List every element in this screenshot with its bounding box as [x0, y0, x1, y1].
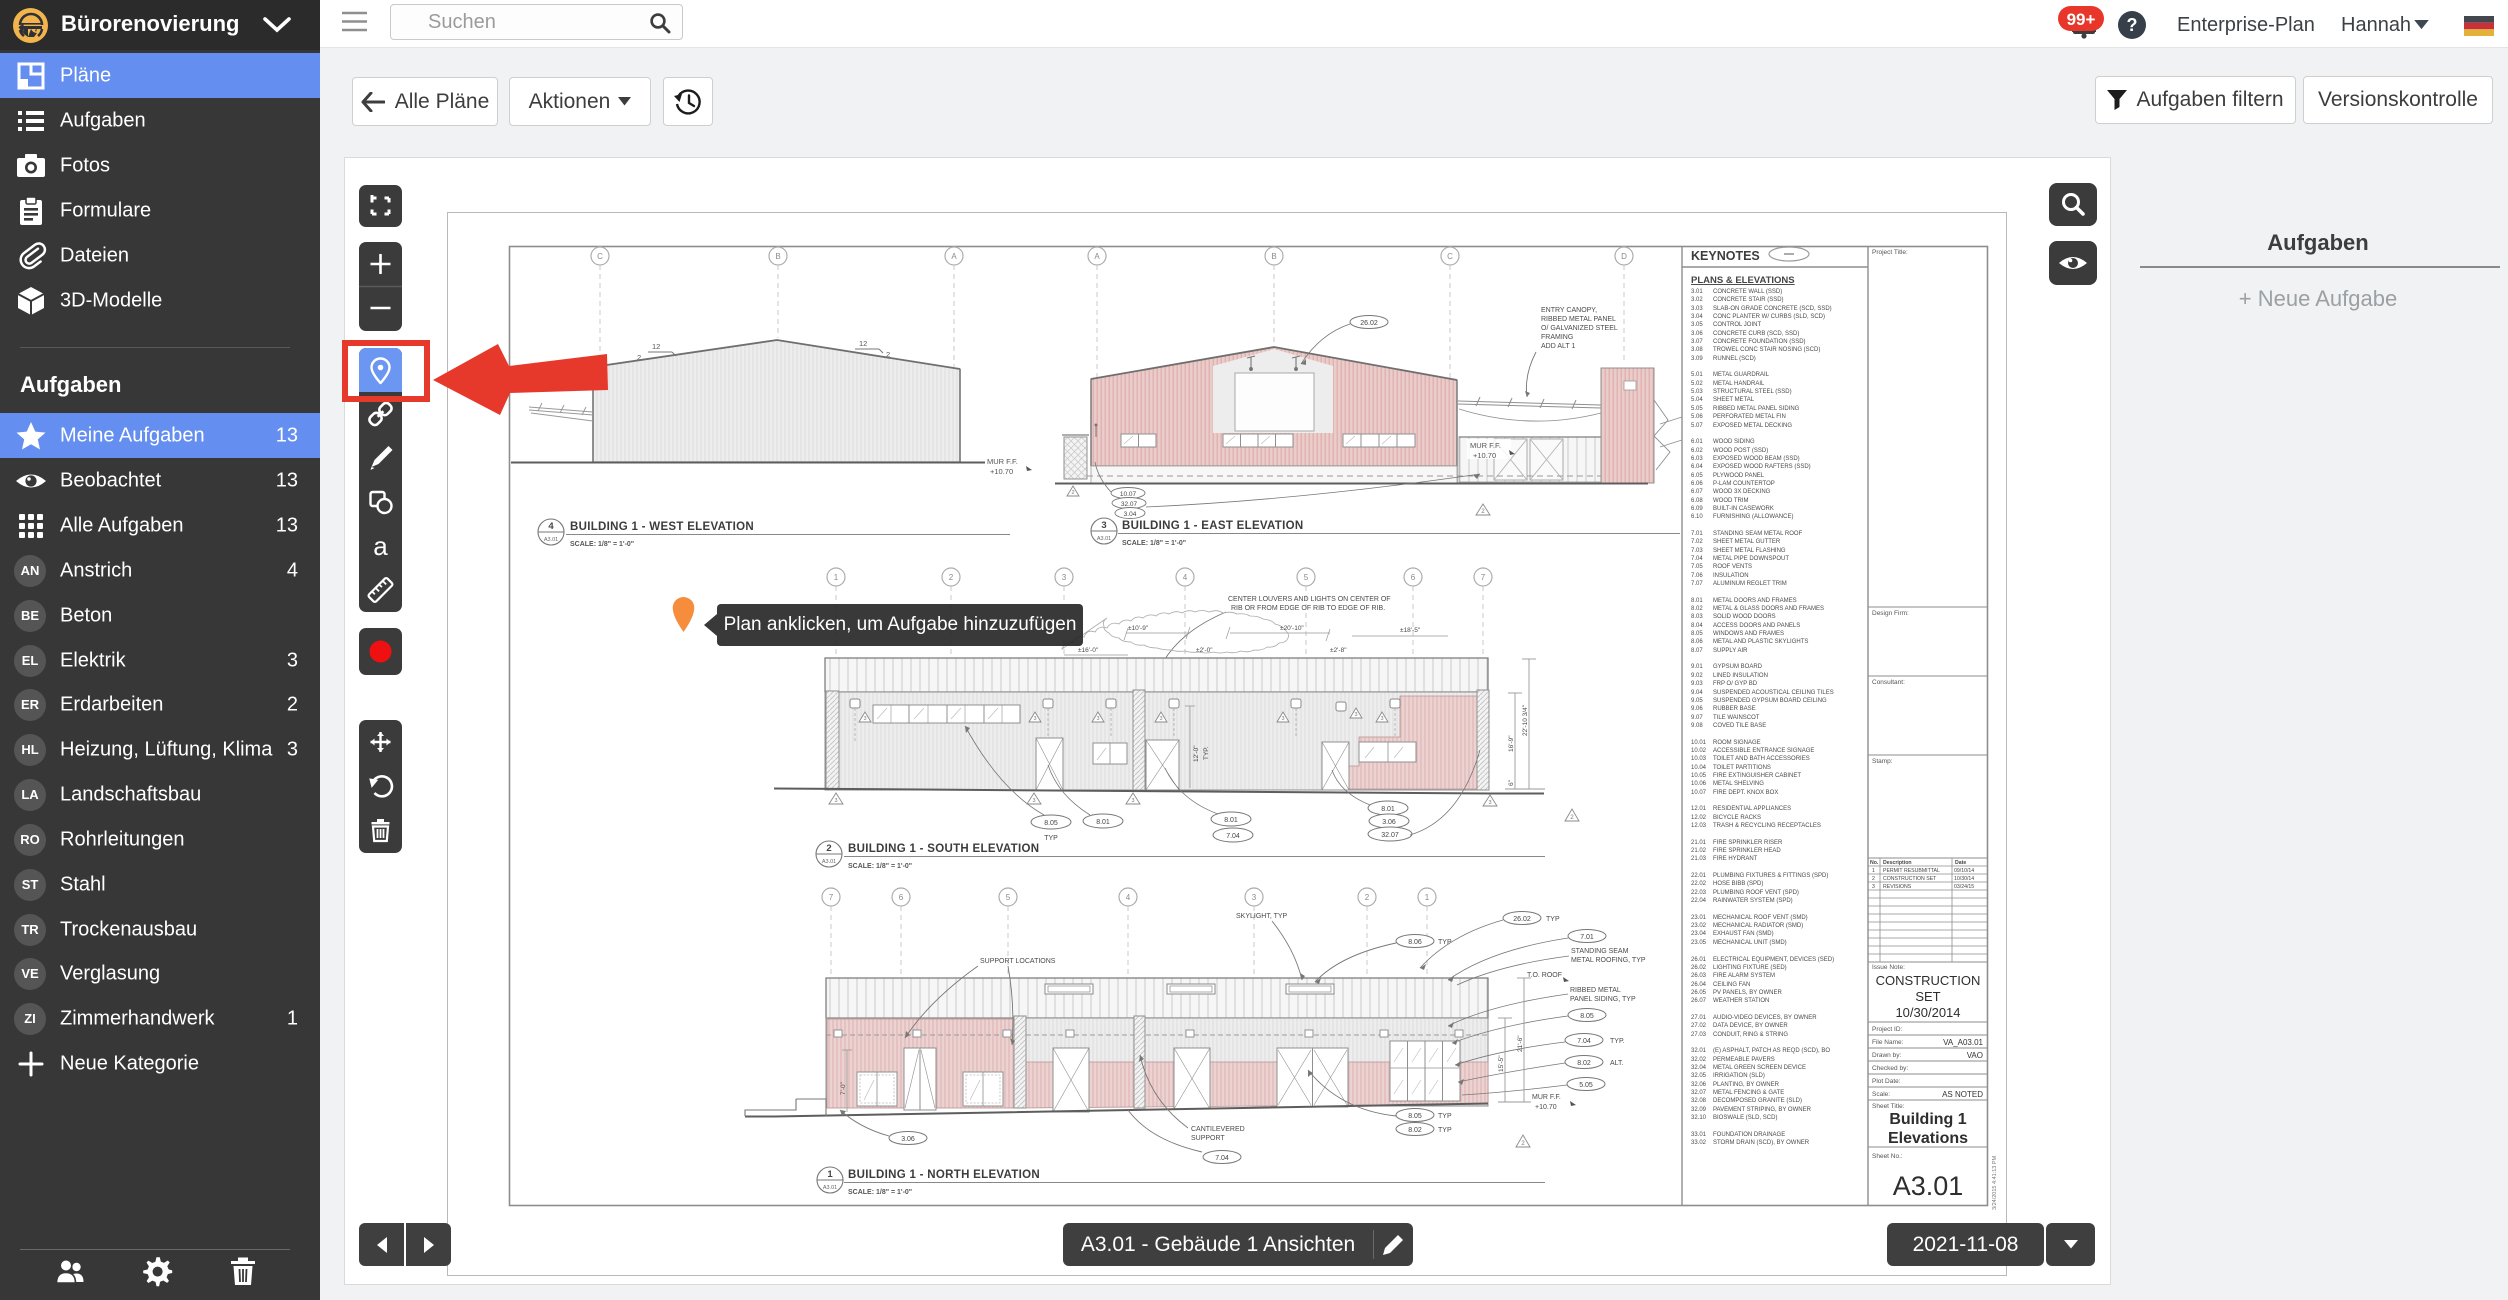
svg-text:8.05: 8.05 [1408, 1113, 1422, 1120]
svg-text:3: 3 [1281, 716, 1284, 722]
svg-text:3: 3 [1096, 716, 1099, 722]
svg-text:TYP.: TYP. [1610, 1038, 1625, 1045]
svg-text:2: 2 [826, 843, 831, 854]
svg-text:C: C [1447, 252, 1453, 261]
svg-text:BUILDING 1 - SOUTH ELEVATION: BUILDING 1 - SOUTH ELEVATION [848, 843, 1039, 855]
svg-text:7'-0": 7'-0" [840, 1081, 847, 1095]
svg-text:A3.01: A3.01 [1097, 536, 1111, 542]
svg-text:16'-9": 16'-9" [1508, 735, 1515, 752]
svg-text:PANEL SIDING, TYP: PANEL SIDING, TYP [1570, 996, 1636, 1003]
svg-text:TYP: TYP [1438, 939, 1452, 946]
svg-text:3: 3 [834, 798, 837, 804]
svg-text:SET: SET [1915, 989, 1940, 1004]
svg-text:+10.70: +10.70 [990, 467, 1013, 476]
svg-text:Drawn by:: Drawn by: [1872, 1052, 1901, 1059]
svg-text:8.05: 8.05 [1580, 1013, 1594, 1020]
svg-text:Date: Date [1955, 860, 1966, 866]
svg-text:1: 1 [834, 573, 839, 582]
svg-text:CONSTRUCTION SET: CONSTRUCTION SET [1883, 876, 1937, 882]
svg-text:T.O. ROOF: T.O. ROOF [1527, 972, 1562, 979]
svg-text:7.01: 7.01 [1580, 934, 1594, 941]
svg-text:5: 5 [1304, 573, 1309, 582]
svg-text:±16'-0": ±16'-0" [1078, 647, 1099, 654]
svg-text:7: 7 [1481, 573, 1486, 582]
svg-text:8.06: 8.06 [1408, 939, 1422, 946]
svg-text:±2'-0": ±2'-0" [1196, 647, 1213, 654]
svg-text:12: 12 [859, 339, 867, 348]
svg-text:Sheet No.:: Sheet No.: [1872, 1153, 1903, 1160]
svg-text:FRAMING: FRAMING [1541, 334, 1573, 341]
svg-text:STANDING SEAM: STANDING SEAM [1571, 948, 1629, 955]
svg-text:BUILDING 1 - WEST ELEVATION: BUILDING 1 - WEST ELEVATION [570, 521, 754, 533]
svg-text:BUILDING 1 - NORTH ELEVATION: BUILDING 1 - NORTH ELEVATION [848, 1169, 1040, 1181]
svg-text:MUR F.F.: MUR F.F. [1532, 1094, 1561, 1101]
svg-text:SCALE: 1/8" = 1'-0": SCALE: 1/8" = 1'-0" [570, 541, 634, 548]
svg-text:12'-0": 12'-0" [1193, 745, 1200, 762]
svg-text:A3.01: A3.01 [1893, 1171, 1964, 1201]
svg-text:3.04: 3.04 [1124, 511, 1137, 518]
svg-text:7: 7 [829, 893, 834, 902]
svg-text:TYP: TYP [1044, 835, 1058, 842]
svg-text:TYP: TYP [1438, 1127, 1452, 1134]
svg-text:VA_A03.01: VA_A03.01 [1943, 1038, 1983, 1047]
svg-text:3: 3 [1062, 573, 1067, 582]
svg-text:ALT.: ALT. [1610, 1060, 1624, 1067]
svg-text:Plot Date:: Plot Date: [1872, 1078, 1901, 1085]
svg-text:A: A [1094, 252, 1100, 261]
svg-text:Design Firm:: Design Firm: [1872, 610, 1909, 617]
svg-text:±10'-9": ±10'-9" [1128, 625, 1149, 632]
svg-text:26.02: 26.02 [1513, 916, 1531, 923]
svg-text:METAL ROOFING, TYP: METAL ROOFING, TYP [1571, 957, 1646, 964]
svg-text:A3.01: A3.01 [822, 859, 836, 865]
svg-text:5.05: 5.05 [1579, 1082, 1593, 1089]
svg-text:99+: 99+ [2067, 10, 2096, 29]
svg-text:D: D [1621, 252, 1627, 261]
svg-text:Consultant:: Consultant: [1872, 679, 1905, 686]
svg-text:CONSTRUCTION: CONSTRUCTION [1876, 973, 1981, 988]
svg-text:3: 3 [1872, 884, 1875, 890]
svg-text:A3.01: A3.01 [823, 1185, 837, 1191]
svg-text:RIBBED METAL: RIBBED METAL [1570, 987, 1621, 994]
svg-text:ENTRY CANOPY,: ENTRY CANOPY, [1541, 307, 1597, 314]
svg-text:8.05: 8.05 [1044, 820, 1058, 827]
svg-text:Issue Note:: Issue Note: [1872, 964, 1905, 971]
svg-text:8.01: 8.01 [1224, 817, 1238, 824]
svg-text:3.06: 3.06 [901, 1136, 915, 1143]
svg-text:C: C [597, 252, 603, 261]
svg-text:±2'-8": ±2'-8" [1330, 647, 1347, 654]
svg-text:3: 3 [1252, 893, 1257, 902]
svg-text:+10.70: +10.70 [1473, 451, 1496, 460]
svg-text:SCALE: 1/8" = 1'-0": SCALE: 1/8" = 1'-0" [848, 1189, 912, 1196]
svg-text:CANTILEVERED: CANTILEVERED [1191, 1126, 1245, 1133]
svg-text:Sheet Title:: Sheet Title: [1872, 1103, 1905, 1110]
svg-text:6: 6 [899, 893, 904, 902]
svg-text:6: 6 [1411, 573, 1416, 582]
svg-text:4: 4 [1126, 893, 1131, 902]
svg-text:3/24/2015 4:41:13 PM: 3/24/2015 4:41:13 PM [1992, 1155, 1998, 1210]
svg-text:3: 3 [1380, 716, 1383, 722]
svg-text:±18'-5": ±18'-5" [1400, 627, 1421, 634]
svg-text:7.04: 7.04 [1215, 1155, 1229, 1162]
svg-text:8.02: 8.02 [1408, 1127, 1422, 1134]
svg-text:Description: Description [1883, 860, 1912, 866]
svg-text:SCALE: 1/8" = 1'-0": SCALE: 1/8" = 1'-0" [1122, 540, 1186, 547]
svg-text:Stamp:: Stamp: [1872, 758, 1893, 765]
svg-text:10.07: 10.07 [1120, 491, 1137, 498]
svg-text:A3.01: A3.01 [544, 537, 558, 543]
svg-text:MUR F.F.: MUR F.F. [987, 457, 1018, 466]
svg-text:KEYNOTES: KEYNOTES [1691, 249, 1760, 263]
svg-text:3.06: 3.06 [1382, 819, 1396, 826]
svg-text:AS NOTED: AS NOTED [1942, 1090, 1983, 1099]
svg-text:2: 2 [1365, 893, 1370, 902]
svg-text:32.07: 32.07 [1381, 832, 1399, 839]
svg-text:A: A [951, 252, 957, 261]
svg-text:TYP: TYP [1438, 1113, 1452, 1120]
svg-text:TYP: TYP [1546, 916, 1560, 923]
svg-text:32.07: 32.07 [1121, 501, 1138, 508]
svg-text:5: 5 [1006, 893, 1011, 902]
svg-text:SCALE: 1/8" = 1'-0": SCALE: 1/8" = 1'-0" [848, 863, 912, 870]
svg-text:Scale:: Scale: [1872, 1091, 1890, 1098]
svg-text:03/24/15: 03/24/15 [1954, 884, 1974, 890]
svg-text:7.04: 7.04 [1577, 1038, 1591, 1045]
svg-text:8.02: 8.02 [1577, 1060, 1591, 1067]
svg-text:RIBBED METAL PANEL: RIBBED METAL PANEL [1541, 316, 1616, 323]
svg-text:6": 6" [1508, 779, 1515, 786]
svg-text:7.04: 7.04 [1226, 833, 1240, 840]
svg-text:09/10/14: 09/10/14 [1954, 868, 1974, 874]
svg-text:8.01: 8.01 [1381, 806, 1395, 813]
svg-text:+10.70: +10.70 [1535, 1104, 1557, 1111]
svg-text:File Name:: File Name: [1872, 1039, 1904, 1046]
svg-text:BUILDING 1 - EAST ELEVATION: BUILDING 1 - EAST ELEVATION [1122, 520, 1303, 532]
svg-text:Checked by:: Checked by: [1872, 1065, 1908, 1072]
svg-text:4: 4 [548, 521, 554, 532]
svg-text:PERMIT RESUBMITTAL: PERMIT RESUBMITTAL [1883, 868, 1940, 874]
svg-text:2: 2 [637, 353, 641, 362]
svg-text:10/30/2014: 10/30/2014 [1895, 1005, 1960, 1020]
svg-text:Building 1: Building 1 [1889, 1111, 1966, 1128]
svg-text:3: 3 [1131, 798, 1134, 804]
svg-text:22'-10 3/4": 22'-10 3/4" [1522, 704, 1529, 736]
svg-text:2: 2 [886, 350, 890, 359]
svg-text:2: 2 [949, 573, 954, 582]
svg-text:3: 3 [1101, 520, 1106, 531]
svg-text:PLANS & ELEVATIONS: PLANS & ELEVATIONS [1691, 275, 1795, 286]
svg-text:±20'-10": ±20'-10" [1280, 625, 1304, 632]
svg-text:26.02: 26.02 [1360, 320, 1378, 327]
svg-text:3: 3 [1488, 800, 1491, 806]
svg-text:2: 2 [1071, 490, 1074, 496]
svg-text:MUR F.F.: MUR F.F. [1470, 441, 1501, 450]
svg-text:SUPPORT LOCATIONS: SUPPORT LOCATIONS [980, 958, 1056, 965]
svg-text:VAO: VAO [1967, 1051, 1983, 1060]
svg-text:REVISIONS: REVISIONS [1883, 884, 1912, 890]
svg-text:4: 4 [1183, 573, 1188, 582]
svg-text:10/30/14: 10/30/14 [1954, 876, 1974, 882]
svg-text:3: 3 [863, 716, 866, 722]
svg-text:Project ID:: Project ID: [1872, 1026, 1903, 1033]
svg-text:3: 3 [1354, 712, 1357, 718]
svg-text:CENTER LOUVERS AND LIGHTS ON C: CENTER LOUVERS AND LIGHTS ON CENTER OF [1228, 596, 1391, 603]
svg-text:a: a [373, 531, 388, 561]
svg-text:B: B [775, 252, 780, 261]
svg-text:B: B [1271, 252, 1276, 261]
svg-text:1: 1 [827, 1169, 833, 1180]
svg-text:Project Title:: Project Title: [1872, 249, 1908, 256]
svg-text:O/ GALVANIZED STEEL: O/ GALVANIZED STEEL [1541, 325, 1618, 332]
svg-text:3: 3 [1032, 798, 1035, 804]
svg-text:2: 2 [1872, 876, 1875, 882]
svg-text:Elevations: Elevations [1888, 1130, 1968, 1147]
svg-text:RIB OR FROM EDGE OF RIB TO EDG: RIB OR FROM EDGE OF RIB TO EDGE OF RIB. [1231, 605, 1385, 612]
svg-text:8.01: 8.01 [1096, 819, 1110, 826]
svg-text:SKYLIGHT, TYP: SKYLIGHT, TYP [1236, 913, 1288, 920]
svg-text:12: 12 [652, 342, 660, 351]
svg-text:3: 3 [1033, 716, 1036, 722]
svg-text:1: 1 [1872, 868, 1875, 874]
svg-text:21'-6": 21'-6" [1517, 1035, 1524, 1052]
svg-text:3: 3 [1159, 716, 1162, 722]
svg-text:15'-5": 15'-5" [1498, 1055, 1505, 1072]
svg-text:SUPPORT: SUPPORT [1191, 1135, 1225, 1142]
svg-text:No.: No. [1870, 860, 1879, 866]
svg-text:1: 1 [1425, 893, 1430, 902]
svg-text:ADD ALT 1: ADD ALT 1 [1541, 343, 1575, 350]
svg-text:TYP.: TYP. [1203, 746, 1210, 760]
